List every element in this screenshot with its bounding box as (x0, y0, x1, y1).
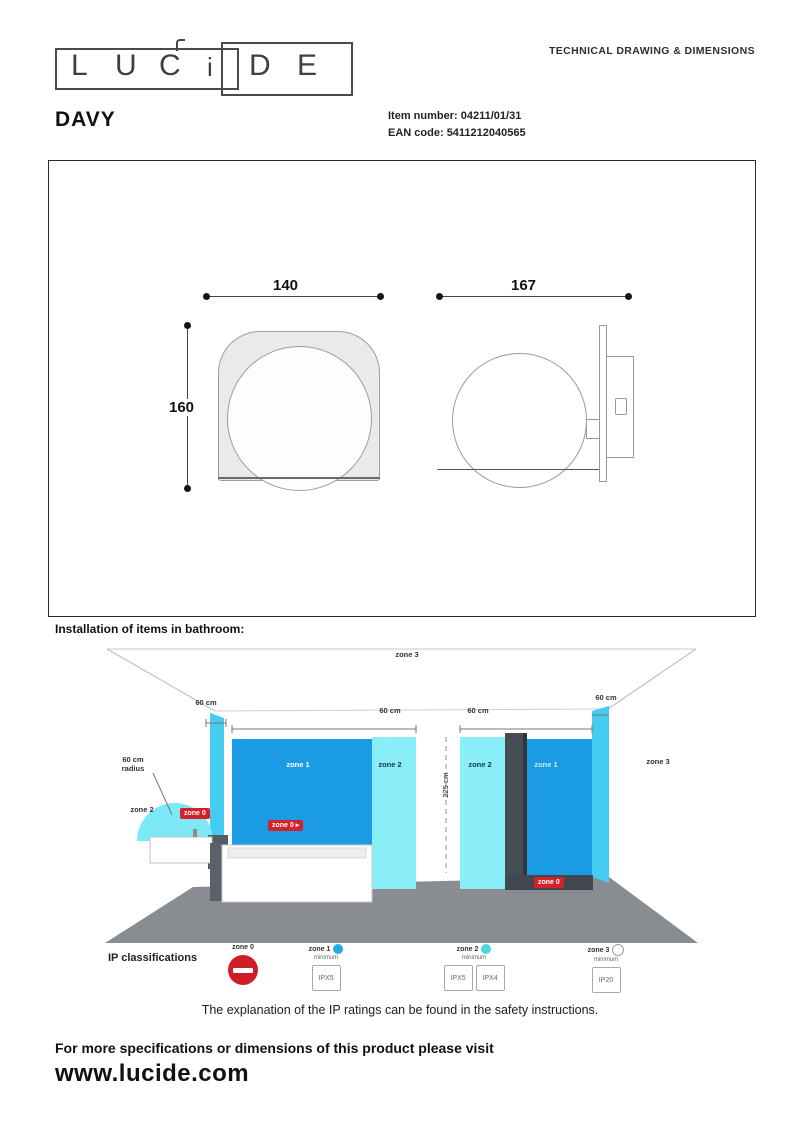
ip-rating-box: IPX4 (476, 965, 505, 991)
dim-60cm-left: 60 cm (186, 698, 226, 707)
zone0-badge-basin: zone 0 (180, 808, 210, 819)
ip-zone2-group: zone 2 minimum IPX5 IPX4 (436, 944, 512, 991)
dim-front-height: 160 (166, 399, 197, 416)
ip-zone2-minimum: minimum (462, 955, 486, 961)
drop-icon (481, 944, 491, 954)
ip-zone1-label: zone 1 (309, 946, 331, 953)
zone2-left-label: zone 2 (370, 760, 410, 769)
ip-zone0-group: zone 0 (218, 944, 268, 985)
zone1-left-label: zone 1 (278, 760, 318, 769)
drop-outline-icon (612, 944, 624, 956)
ip-zone1-group: zone 1 minimum IPX5 (300, 944, 352, 991)
logo-letter: U (115, 49, 137, 83)
dim-dot (184, 322, 191, 329)
height-dim-label: 225 cm (441, 765, 450, 805)
logo-letter: C (159, 49, 181, 83)
ip-rating-box: IPX5 (444, 965, 473, 991)
footer-url: www.lucide.com (55, 1060, 249, 1088)
ip-classifications-heading: IP classifications (108, 952, 197, 964)
dim-60cm-mid-left: 60 cm (370, 706, 410, 715)
logo-letter: L (71, 49, 88, 83)
dim-line-front-width (207, 296, 381, 297)
no-entry-icon (228, 955, 258, 985)
logo-letter: i (207, 52, 213, 83)
arrow-right-icon: ▸ (296, 822, 300, 829)
bathroom-section-title: Installation of items in bathroom: (55, 622, 244, 636)
product-codes: Item number: 04211/01/31 EAN code: 54112… (388, 108, 526, 142)
dim-front-width: 140 (268, 277, 303, 294)
radius-label: 60 cm radius (113, 755, 153, 773)
bathroom-diagram-graphics (105, 645, 698, 945)
item-number-label: Item number: (388, 110, 458, 122)
dim-dot (436, 293, 443, 300)
ip-zone1-minimum: minimum (314, 955, 338, 961)
dim-dot (625, 293, 632, 300)
basin-zone-label: zone 2 (124, 805, 160, 814)
item-number-value: 04211/01/31 (461, 110, 522, 122)
zone1-right-label: zone 1 (526, 760, 566, 769)
zone2-right-label: zone 2 (460, 760, 500, 769)
shower-column (505, 733, 525, 879)
lucide-logo: L U C i D E (55, 40, 351, 92)
dim-60cm-mid-right: 60 cm (458, 706, 498, 715)
lamp-side-detail (615, 398, 627, 415)
ip-zone3-minimum: minimum (594, 957, 618, 963)
lamp-front-baseline (218, 477, 380, 479)
ean-label: EAN code: (388, 127, 444, 139)
zone3-right-label: zone 3 (636, 757, 680, 766)
item-number-row: Item number: 04211/01/31 (388, 108, 526, 125)
technical-drawing-frame (48, 160, 756, 617)
zone0-badge-bathtub: zone 0 ▸ (268, 820, 303, 831)
logo-letter: D (249, 49, 271, 83)
ip-zone3-label: zone 3 (588, 947, 610, 954)
drop-icon (333, 944, 343, 954)
logo-box-right (221, 42, 353, 96)
washbasin (150, 837, 212, 863)
lamp-front-globe (227, 346, 372, 491)
ip-zone2-label: zone 2 (457, 946, 479, 953)
dim-line-side-width (440, 296, 628, 297)
dim-60cm-right: 60 cm (586, 693, 626, 702)
bathroom-diagram (105, 645, 698, 945)
ean-value: 5411212040565 (447, 127, 526, 139)
lamp-side-globe (452, 353, 587, 488)
ip-zone3-group: zone 3 minimum IP20 (580, 944, 632, 993)
document-type-title: TECHNICAL DRAWING & DIMENSIONS (470, 45, 755, 57)
c-accent-icon (176, 39, 185, 51)
zone0-badge-shower: zone 0 (534, 877, 564, 888)
dim-dot (203, 293, 210, 300)
ip-note: The explanation of the IP ratings can be… (0, 1003, 800, 1017)
lamp-side-baseline (437, 469, 605, 470)
dim-side-width: 167 (506, 277, 541, 294)
ceiling-zone-label: zone 3 (385, 650, 429, 659)
dim-dot (184, 485, 191, 492)
ean-row: EAN code: 5411212040565 (388, 125, 526, 142)
basin-faucet (193, 829, 197, 837)
right-edge-strip (592, 706, 609, 883)
ip-rating-box: IP20 (592, 967, 621, 993)
ip-zone0-label: zone 0 (232, 944, 254, 951)
bathtub-rim (228, 848, 366, 858)
logo-letter: E (297, 49, 317, 83)
footer-line: For more specifications or dimensions of… (55, 1040, 494, 1056)
product-name: DAVY (55, 108, 116, 132)
dim-dot (377, 293, 384, 300)
datasheet-page: L U C i D E TECHNICAL DRAWING & DIMENSIO… (0, 0, 800, 1133)
ip-rating-box: IPX5 (312, 965, 341, 991)
